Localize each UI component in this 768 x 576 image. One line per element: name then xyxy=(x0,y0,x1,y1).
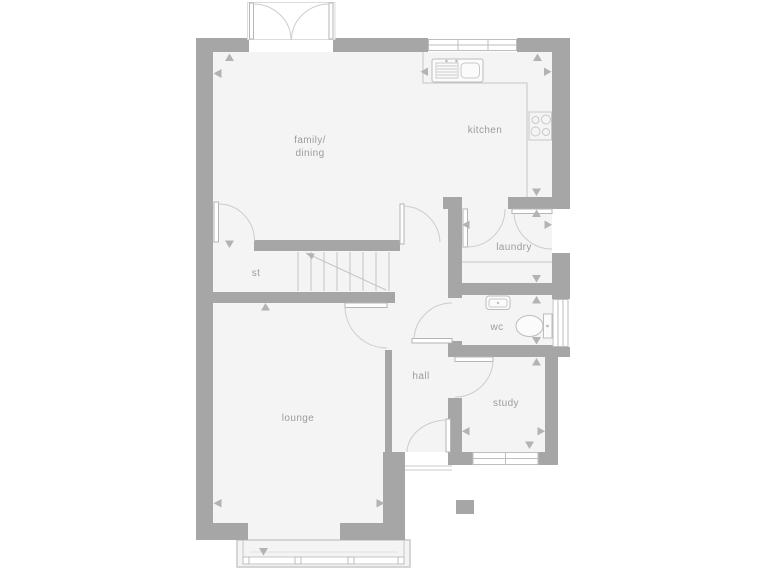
bay-window-post xyxy=(243,557,249,564)
floor-lounge-lower xyxy=(213,452,385,523)
label-lounge: lounge xyxy=(282,413,314,424)
wall-wc-study xyxy=(448,345,558,357)
bay-window-glazing xyxy=(243,557,404,564)
wc-basin xyxy=(486,296,510,310)
floor-bay-opening xyxy=(248,523,340,540)
toilet-bowl xyxy=(516,316,543,337)
wall-stairs-north xyxy=(254,240,400,251)
bay-window-post xyxy=(348,557,354,564)
label-study: study xyxy=(493,398,519,409)
label-family-dining-1: family/ xyxy=(294,135,326,146)
toilet xyxy=(516,314,552,338)
wall-top-middle xyxy=(333,38,428,52)
wc-window xyxy=(553,300,568,347)
wall-right-upper xyxy=(552,38,570,209)
french-door-left-leaf xyxy=(250,3,254,39)
wall-laundry-wc xyxy=(452,283,552,295)
label-laundry: laundry xyxy=(496,242,532,253)
wall-hall-west-column xyxy=(383,452,405,540)
wall-lounge-south-west xyxy=(196,523,248,540)
wall-study-south-east xyxy=(538,452,558,465)
label-kitchen: kitchen xyxy=(468,125,503,136)
store-door-leaf xyxy=(214,202,219,242)
wall-porch-pillar xyxy=(456,500,474,514)
label-family-dining-2: dining xyxy=(295,148,324,159)
front-door-leaf xyxy=(446,419,451,452)
sink-tap xyxy=(445,60,448,63)
bay-window-post xyxy=(398,557,404,564)
wall-kitchen-laundry xyxy=(508,197,552,209)
wall-study-south-west xyxy=(448,452,473,465)
porch-step-lines xyxy=(405,466,452,470)
wc-door-leaf xyxy=(412,339,452,344)
wall-lounge-east xyxy=(385,350,392,452)
family-hall-door-leaf xyxy=(400,204,404,244)
french-door-right-leaf xyxy=(329,3,333,39)
floor-plan-page: family/ dining kitchen laundry st wc hal… xyxy=(0,0,768,576)
label-hall: hall xyxy=(412,371,429,382)
wall-left xyxy=(196,38,213,540)
study-door-leaf xyxy=(455,357,493,362)
label-wc: wc xyxy=(489,322,503,333)
toilet-flush xyxy=(546,325,549,328)
wall-right-study xyxy=(545,357,558,465)
wall-right-mid xyxy=(552,253,570,299)
french-doors-surround xyxy=(248,3,336,40)
kitchen-laundry-door-leaf xyxy=(463,209,468,247)
floor-plan-drawing: family/ dining kitchen laundry st wc hal… xyxy=(0,0,768,576)
lounge-door-leaf xyxy=(345,303,387,308)
basin-tap xyxy=(497,302,499,304)
back-door-leaf xyxy=(512,209,552,214)
wall-stairs-south xyxy=(213,292,395,303)
kitchen-sink xyxy=(432,59,483,82)
wall-family-door-stub xyxy=(443,197,462,209)
label-store: st xyxy=(252,268,261,279)
sink-tap xyxy=(455,60,458,63)
bay-window-post xyxy=(295,557,301,564)
